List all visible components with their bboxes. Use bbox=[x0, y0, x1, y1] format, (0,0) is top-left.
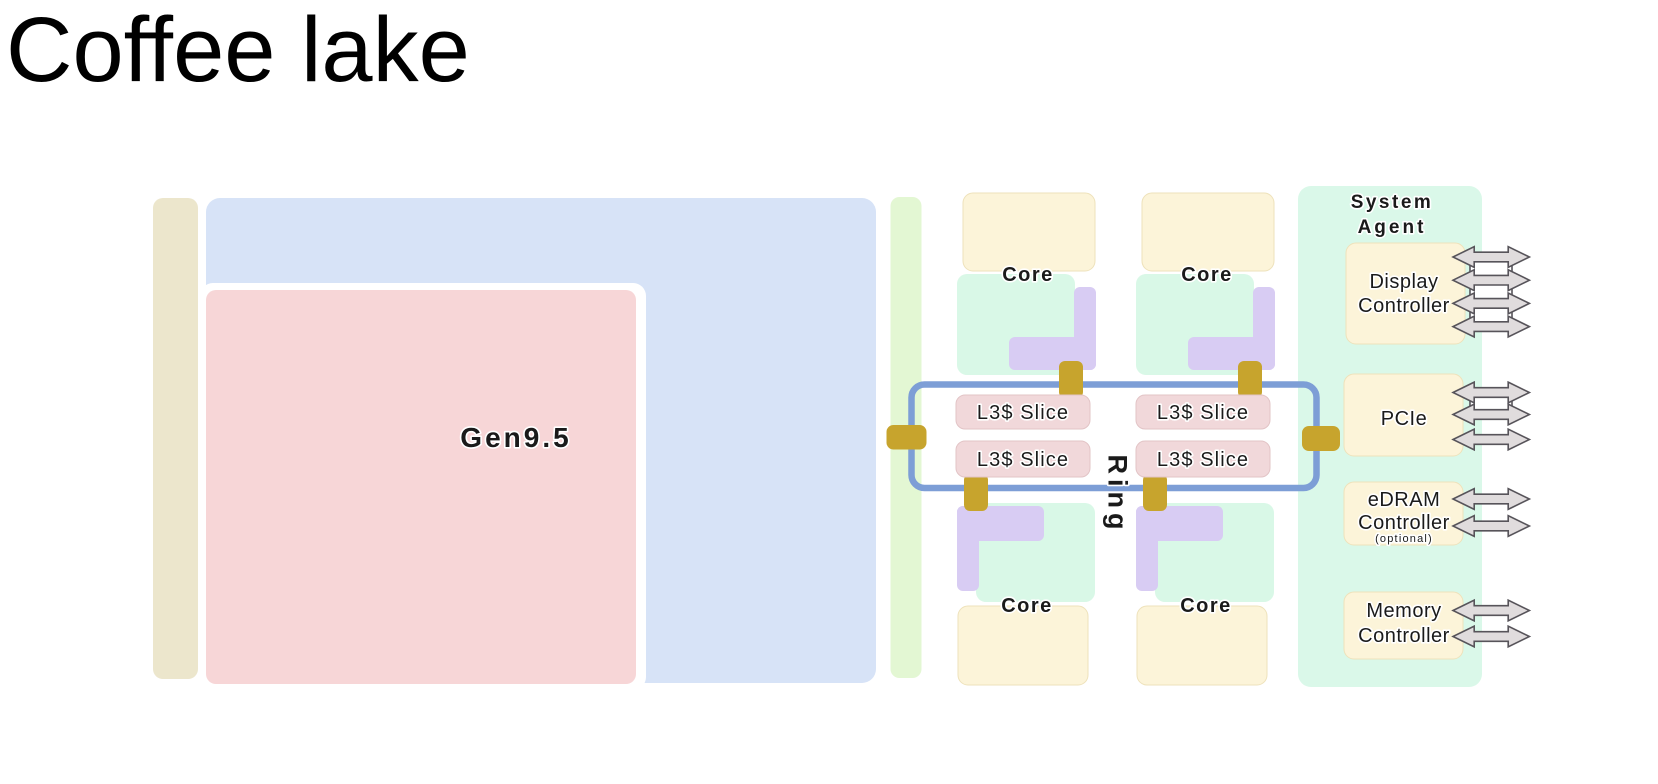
svg-text:System: System bbox=[1351, 192, 1434, 213]
svg-text:Core: Core bbox=[1181, 264, 1233, 286]
svg-text:Display: Display bbox=[1369, 271, 1438, 293]
svg-text:Core: Core bbox=[1002, 264, 1054, 286]
svg-text:Gen9.5: Gen9.5 bbox=[460, 422, 571, 453]
svg-text:Core: Core bbox=[1001, 595, 1053, 617]
svg-text:Ring: Ring bbox=[1103, 455, 1133, 535]
svg-text:Controller: Controller bbox=[1358, 625, 1450, 647]
svg-text:eDRAM: eDRAM bbox=[1368, 489, 1441, 511]
svg-text:Agent: Agent bbox=[1358, 217, 1427, 238]
svg-text:(optional): (optional) bbox=[1375, 533, 1433, 545]
svg-text:L3$ Slice: L3$ Slice bbox=[1157, 402, 1249, 424]
svg-text:Memory: Memory bbox=[1366, 600, 1441, 622]
svg-text:L3$ Slice: L3$ Slice bbox=[977, 449, 1069, 471]
svg-text:L3$ Slice: L3$ Slice bbox=[977, 402, 1069, 424]
svg-text:Controller: Controller bbox=[1358, 512, 1450, 534]
svg-text:L3$ Slice: L3$ Slice bbox=[1157, 449, 1249, 471]
svg-text:Core: Core bbox=[1180, 595, 1232, 617]
svg-text:Coffee lake: Coffee lake bbox=[6, 0, 470, 101]
svg-text:Controller: Controller bbox=[1358, 295, 1450, 317]
svg-text:PCIe: PCIe bbox=[1381, 408, 1427, 430]
